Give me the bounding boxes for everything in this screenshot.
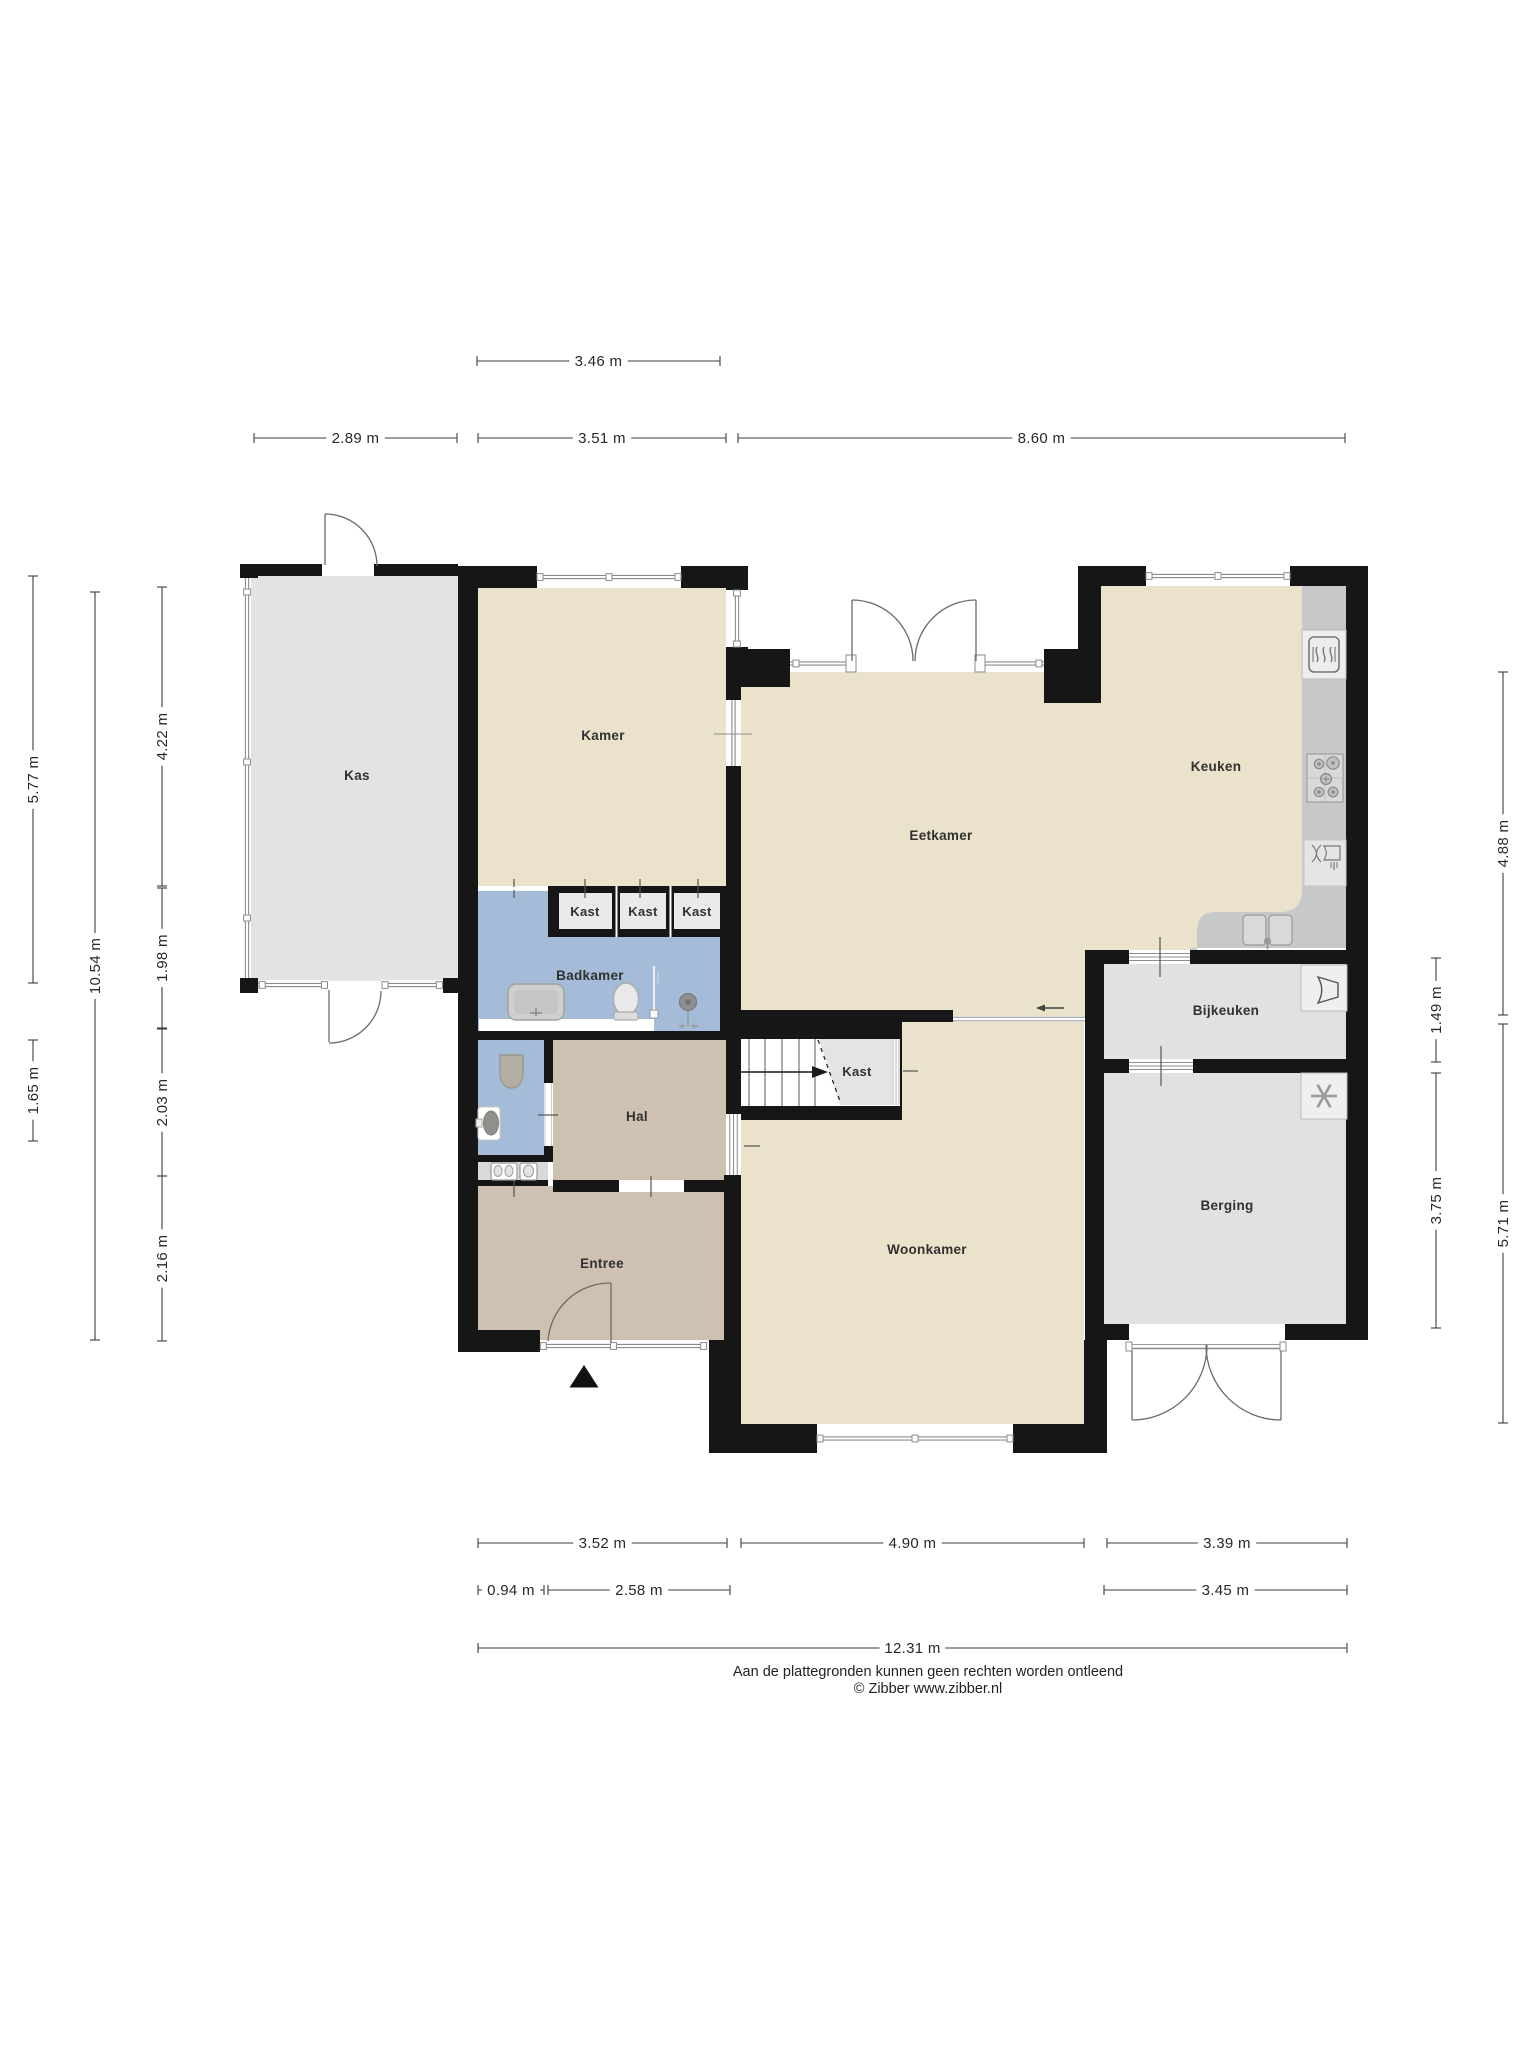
svg-text:© Zibber www.zibber.nl: © Zibber www.zibber.nl	[854, 1681, 1003, 1697]
svg-text:2.89 m: 2.89 m	[332, 430, 380, 447]
svg-text:5.77 m: 5.77 m	[25, 756, 42, 804]
svg-text:12.31 m: 12.31 m	[884, 1640, 940, 1657]
svg-text:Kast: Kast	[842, 1064, 872, 1079]
svg-text:Kast: Kast	[682, 904, 712, 919]
svg-text:4.22 m: 4.22 m	[154, 713, 171, 761]
svg-text:Hal: Hal	[626, 1109, 648, 1124]
svg-text:3.45 m: 3.45 m	[1202, 1582, 1250, 1599]
svg-text:1.65 m: 1.65 m	[25, 1067, 42, 1115]
svg-text:Kas: Kas	[344, 768, 370, 783]
svg-text:Bijkeuken: Bijkeuken	[1193, 1003, 1259, 1018]
svg-text:Eetkamer: Eetkamer	[909, 828, 973, 843]
svg-text:Badkamer: Badkamer	[556, 968, 624, 983]
svg-text:Entree: Entree	[580, 1256, 624, 1271]
svg-text:5.71 m: 5.71 m	[1495, 1200, 1512, 1248]
svg-text:10.54 m: 10.54 m	[87, 938, 104, 994]
svg-text:3.75 m: 3.75 m	[1428, 1177, 1445, 1225]
svg-text:Kamer: Kamer	[581, 728, 625, 743]
svg-text:2.58 m: 2.58 m	[615, 1582, 663, 1599]
svg-text:4.90 m: 4.90 m	[889, 1535, 937, 1552]
svg-text:2.03 m: 2.03 m	[154, 1079, 171, 1127]
svg-text:0.94 m: 0.94 m	[487, 1582, 535, 1599]
svg-text:Kast: Kast	[570, 904, 600, 919]
svg-text:4.88 m: 4.88 m	[1495, 820, 1512, 868]
svg-text:1.49 m: 1.49 m	[1428, 986, 1445, 1034]
svg-text:Keuken: Keuken	[1191, 759, 1242, 774]
svg-text:Kast: Kast	[628, 904, 658, 919]
svg-text:Berging: Berging	[1200, 1198, 1253, 1213]
svg-text:1.98 m: 1.98 m	[154, 934, 171, 982]
svg-text:3.46 m: 3.46 m	[575, 353, 623, 370]
svg-text:8.60 m: 8.60 m	[1018, 430, 1066, 447]
svg-text:3.51 m: 3.51 m	[578, 430, 626, 447]
svg-text:3.39 m: 3.39 m	[1203, 1535, 1251, 1552]
svg-text:Woonkamer: Woonkamer	[887, 1242, 967, 1257]
svg-text:2.16 m: 2.16 m	[154, 1235, 171, 1283]
svg-text:Aan de plattegronden kunnen ge: Aan de plattegronden kunnen geen rechten…	[733, 1664, 1123, 1680]
svg-text:3.52 m: 3.52 m	[579, 1535, 627, 1552]
